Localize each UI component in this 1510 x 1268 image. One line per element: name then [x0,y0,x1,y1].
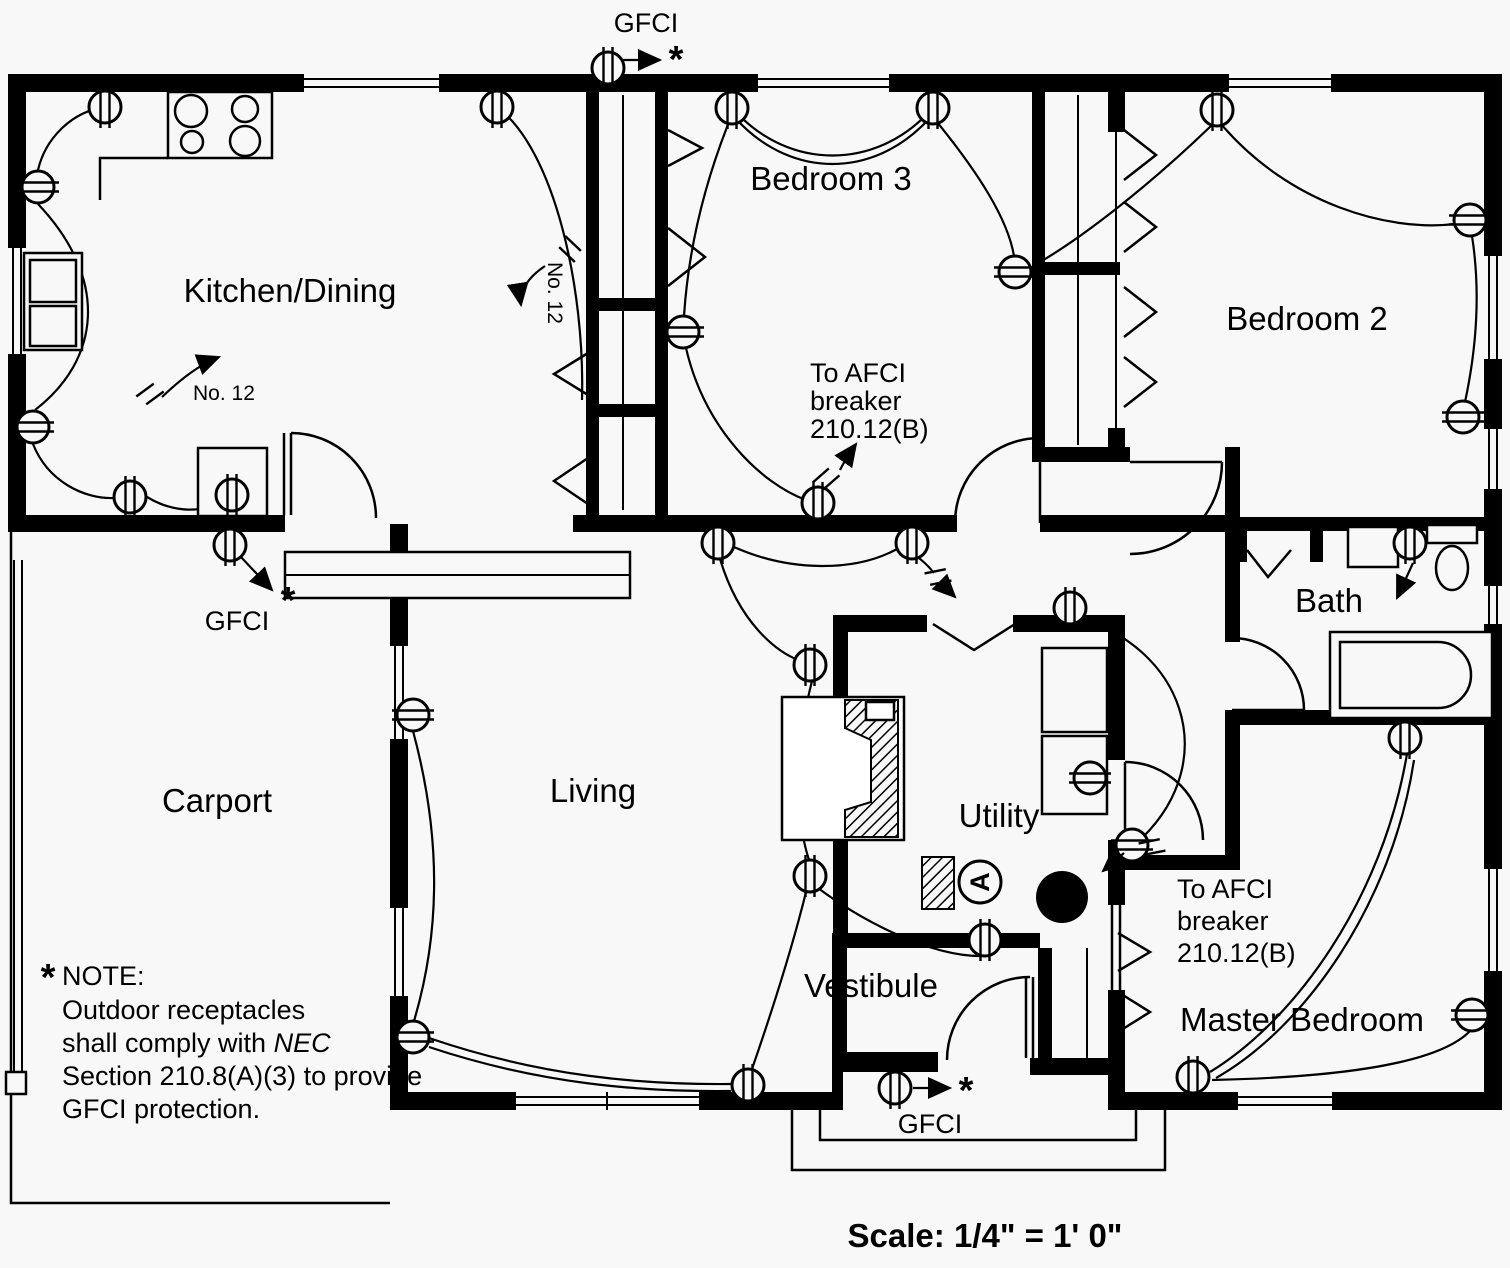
gfci-receptacle-icon [879,1067,911,1109]
svg-text:To AFCI: To AFCI [1177,874,1273,904]
carport-post [6,1072,26,1094]
svg-text:210.12(B): 210.12(B) [1177,938,1296,968]
window-icon [515,1092,700,1110]
afci-callout-bedroom3: To AFCI breaker 210.12(B) [810,358,929,444]
duplex-receptacle-icon [662,316,704,348]
scale-label: Scale: 1/4" = 1' 0" [848,1217,1123,1254]
special-outlet-a: A [959,861,1001,903]
entry-stoop [792,1110,1165,1170]
closet-rod-chevron [1124,357,1156,407]
window-icon [1237,1092,1333,1110]
closet-rod-chevron [668,228,705,286]
kitchen-counter [100,92,272,200]
arrow-no12-closet [521,266,545,305]
room-label-bedroom3: Bedroom 3 [750,160,911,197]
note-line-nec: shall comply with NEC [62,1028,331,1058]
window-icon [1484,255,1502,360]
lavatory-icon [1348,527,1398,567]
closet-rod-chevron [1124,130,1156,180]
room-label-bedroom2: Bedroom 2 [1226,300,1387,337]
window-icon [390,907,408,997]
window-icon [1228,74,1332,92]
bathtub-icon [1330,632,1492,718]
svg-text:breaker: breaker [810,386,902,416]
duplex-receptacle-icon [969,919,1001,961]
room-label-kitchen: Kitchen/Dining [184,272,397,309]
floor-plan-page: A [0,0,1510,1268]
duplex-receptacle-icon [994,256,1036,288]
window-icon [1484,428,1502,490]
closet-rod-chevron [668,130,702,166]
note-heading: NOTE: [62,961,145,991]
toilet-bowl-icon [1436,546,1468,590]
door-front [947,977,1033,1060]
door-bedroom3 [955,438,1040,523]
room-label-carport: Carport [162,782,272,819]
door-bath [1232,638,1304,710]
svg-text:Outdoor receptacles: Outdoor receptacles [62,995,305,1025]
closet-rod-chevron [554,458,588,504]
arrow-gfci-kitchen [240,556,272,590]
outlet-a-letter: A [965,872,995,892]
gfci-label-top: GFCI [614,8,679,38]
washer-icon [1042,648,1107,732]
refrigerator-icon [24,253,82,350]
door-kitchen-carport [284,433,376,518]
arrow-hall-feed [942,584,955,597]
closet-rod-chevron [1118,933,1150,971]
room-label-utility: Utility [959,797,1040,834]
asterisk-ref: * [669,39,684,81]
window-icon [1484,585,1502,625]
window-icon [303,74,440,92]
room-label-master: Master Bedroom [1180,1001,1424,1038]
room-label-bath: Bath [1295,582,1363,619]
duplex-receptacle-icon [89,86,121,128]
room-label-living: Living [550,772,636,809]
asterisk-ref: * [281,580,296,622]
water-heater-icon [1036,871,1088,923]
arrow-afci-bedroom3 [840,444,856,470]
toilet-tank-icon [1427,525,1477,543]
door-utility-bifold [933,624,1015,650]
closet-rod-chevron [1124,287,1156,337]
asterisk-ref: * [959,1070,974,1112]
chimney-hatch [922,857,954,909]
svg-text:Section 210.8(A)(3) to provide: Section 210.8(A)(3) to provide [62,1061,422,1091]
duplex-receptacle-icon [716,87,748,129]
svg-text:To AFCI: To AFCI [810,358,906,388]
no12-label-kitchen: No. 12 [193,382,255,405]
arrow-gfci-bath [1397,563,1413,598]
duplex-receptacle-icon [481,86,513,128]
wire-tick-icon [135,380,165,409]
svg-text:breaker: breaker [1177,906,1269,936]
carport-shelf [285,552,630,598]
duplex-receptacle-icon [917,87,949,129]
duplex-receptacle-icon [1201,89,1233,131]
electrical-floor-plan-diagram: A [0,0,1510,1268]
duplex-receptacle-icon [1442,401,1484,433]
conductor-ticks [135,235,1168,863]
closet-rod-chevron [1124,202,1156,252]
duplex-receptacle-icon [1177,1056,1209,1098]
duplex-receptacle-icon [794,644,826,686]
closet-rod-chevron [1247,550,1291,577]
svg-text:210.12(B): 210.12(B) [810,414,929,444]
wire-tick-icon [557,235,583,262]
fireplace [782,697,904,840]
afci-callout-utility: To AFCI breaker 210.12(B) [1177,874,1296,968]
duplex-receptacle-icon [114,476,146,518]
note-asterisk: * [41,957,56,999]
svg-text:GFCI protection.: GFCI protection. [62,1094,260,1124]
no12-label-closet: No. 12 [543,262,566,324]
window-icon [1484,868,1502,972]
room-label-vestibule: Vestibule [804,967,938,1004]
door-bedroom2 [1130,462,1222,554]
gfci-label-vestibule: GFCI [898,1109,963,1139]
gfci-label-kitchen: GFCI [205,606,270,636]
door-master-opening [1112,905,1120,990]
note-block: * NOTE: Outdoor receptacles shall comply… [41,957,423,1124]
window-icon [757,74,890,92]
